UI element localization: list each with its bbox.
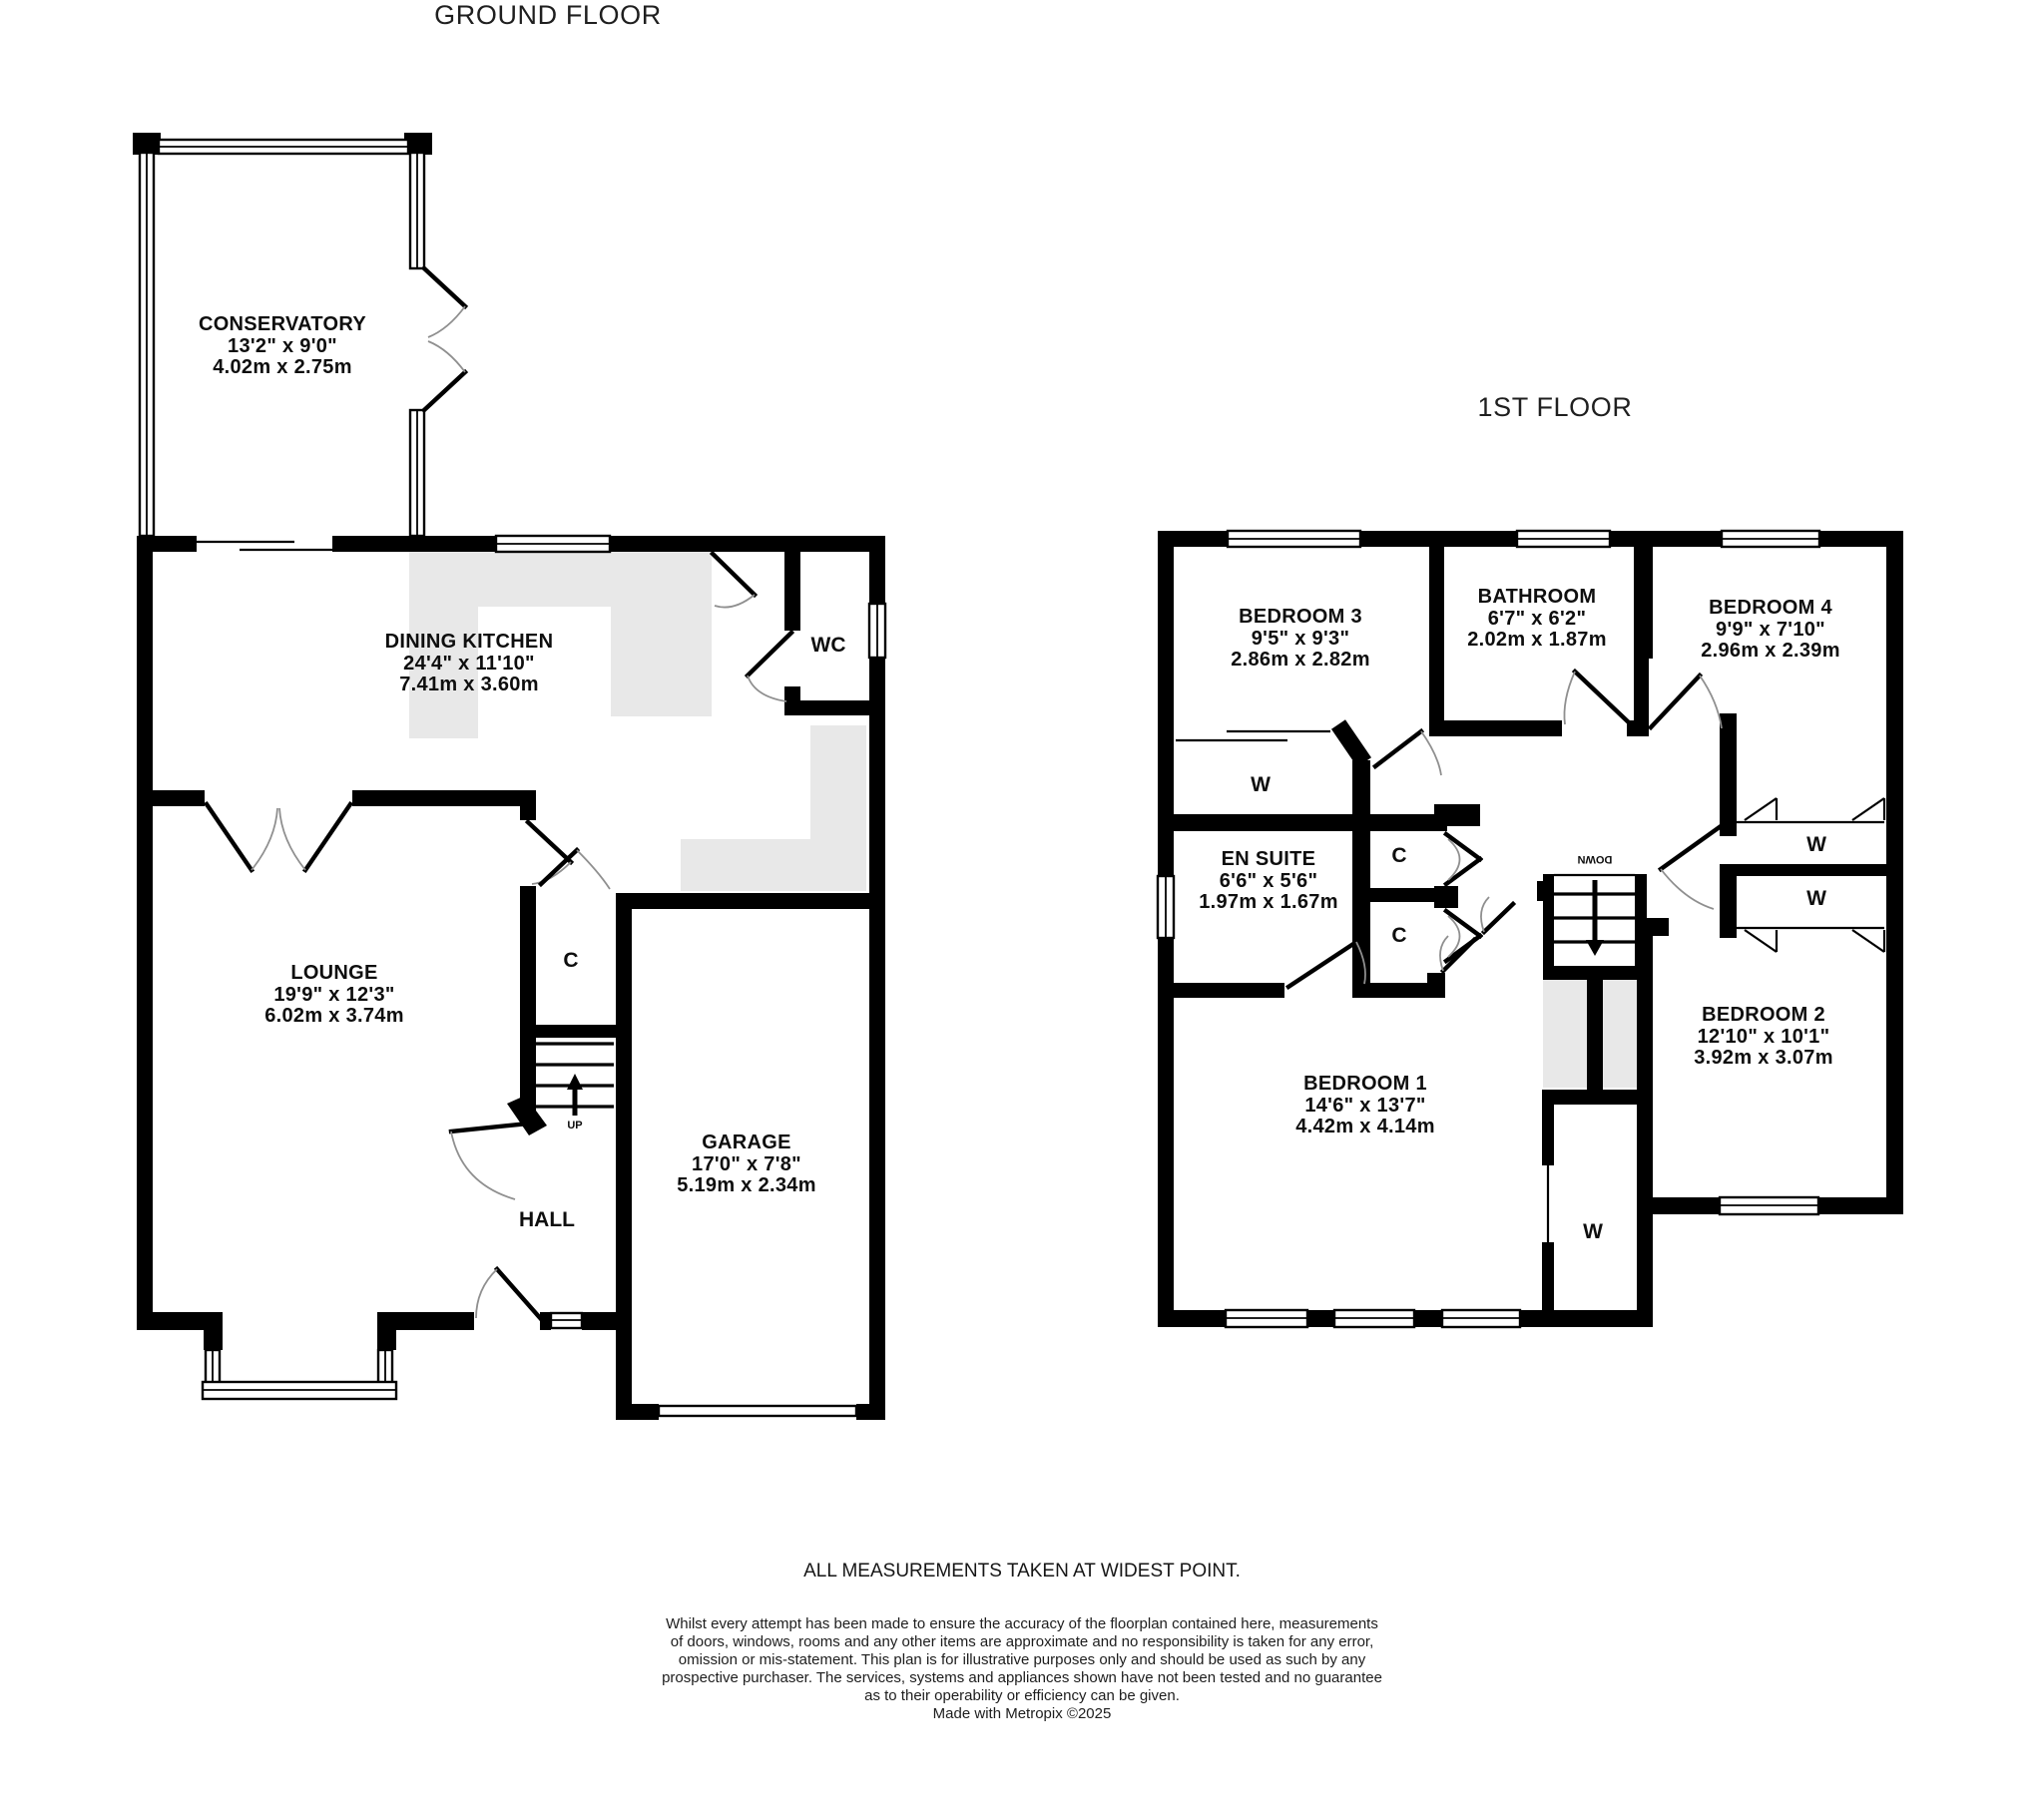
ground-floor-plan: GROUND FLOOR (133, 0, 885, 1420)
bedroom-4-label: BEDROOM 4 9'9" x 7'10" 2.96m x 2.39m (1701, 597, 1840, 662)
wc-label: WC (811, 634, 846, 657)
down-arrow-head (1586, 940, 1604, 956)
svg-text:BEDROOM 4: BEDROOM 4 (1709, 597, 1832, 619)
bedroom-2-label: BEDROOM 2 12'10" x 10'1" 3.92m x 3.07m (1694, 1004, 1833, 1069)
svg-text:19'9" x 12'3": 19'9" x 12'3" (273, 984, 394, 1006)
stairs-down-label: DOWN (1578, 853, 1613, 865)
svg-text:12'10" x 10'1": 12'10" x 10'1" (1698, 1026, 1830, 1048)
en-suite-label: EN SUITE 6'6" x 5'6" 1.97m x 1.67m (1199, 848, 1338, 913)
stairs-up-label: UP (567, 1120, 582, 1131)
garage-door (659, 1406, 856, 1416)
svg-text:6'6" x 5'6": 6'6" x 5'6" (1220, 870, 1318, 892)
credit-line: Made with Metropix ©2025 (933, 1705, 1112, 1722)
bedroom-3-label: BEDROOM 3 9'5" x 9'3" 2.86m x 2.82m (1231, 606, 1370, 671)
svg-text:CONSERVATORY: CONSERVATORY (199, 313, 366, 335)
closet-label: C (563, 949, 578, 972)
svg-text:LOUNGE: LOUNGE (290, 962, 377, 984)
svg-text:24'4" x 11'10": 24'4" x 11'10" (403, 653, 535, 675)
svg-text:2.96m x 2.39m: 2.96m x 2.39m (1701, 640, 1840, 662)
svg-text:EN SUITE: EN SUITE (1222, 848, 1316, 870)
disclaimer-line: as to their operability or efficiency ca… (864, 1687, 1180, 1704)
svg-text:1.97m x 1.67m: 1.97m x 1.67m (1199, 891, 1338, 913)
svg-text:14'6" x 13'7": 14'6" x 13'7" (1304, 1095, 1425, 1117)
svg-text:BEDROOM 1: BEDROOM 1 (1303, 1073, 1427, 1095)
up-arrow-head (567, 1074, 583, 1090)
svg-text:9'9" x 7'10": 9'9" x 7'10" (1716, 619, 1825, 641)
front-door (497, 1269, 542, 1320)
wardrobe-label: W (1583, 1220, 1603, 1243)
svg-text:6'7" x 6'2": 6'7" x 6'2" (1488, 608, 1587, 630)
disclaimer-line: of doors, windows, rooms and any other i… (671, 1633, 1374, 1650)
garage-label: GARAGE 17'0" x 7'8" 5.19m x 2.34m (677, 1131, 816, 1196)
svg-text:17'0" x 7'8": 17'0" x 7'8" (692, 1153, 801, 1175)
svg-text:13'2" x 9'0": 13'2" x 9'0" (228, 335, 337, 357)
stairs-down: DOWN (1554, 853, 1635, 956)
conservatory-label: CONSERVATORY 13'2" x 9'0" 4.02m x 2.75m (199, 313, 366, 378)
svg-text:6.02m x 3.74m: 6.02m x 3.74m (264, 1005, 404, 1027)
first-floor-plan: 1ST FLOOR (1158, 392, 1903, 1327)
lounge-label: LOUNGE 19'9" x 12'3" 6.02m x 3.74m (264, 962, 404, 1027)
ground-floor-title: GROUND FLOOR (434, 0, 662, 30)
svg-text:4.42m x 4.14m: 4.42m x 4.14m (1295, 1116, 1435, 1137)
disclaimer-line: omission or mis-statement. This plan is … (679, 1651, 1366, 1668)
svg-text:2.86m x 2.82m: 2.86m x 2.82m (1231, 649, 1370, 671)
floorplan-canvas: GROUND FLOOR (0, 0, 2044, 1810)
svg-text:7.41m x 3.60m: 7.41m x 3.60m (399, 674, 539, 695)
wardrobe-label: W (1251, 773, 1271, 796)
svg-text:GARAGE: GARAGE (702, 1131, 791, 1153)
svg-text:4.02m x 2.75m: 4.02m x 2.75m (213, 356, 352, 378)
wardrobe-label: W (1806, 833, 1826, 856)
measurements-note: ALL MEASUREMENTS TAKEN AT WIDEST POINT. (803, 1561, 1241, 1582)
svg-text:BATHROOM: BATHROOM (1478, 586, 1597, 608)
first-floor-title: 1ST FLOOR (1478, 392, 1633, 422)
svg-text:DINING KITCHEN: DINING KITCHEN (385, 631, 554, 653)
svg-text:9'5" x 9'3": 9'5" x 9'3" (1252, 628, 1350, 650)
disclaimer-line: prospective purchaser. The services, sys… (662, 1669, 1382, 1686)
svg-text:BEDROOM 3: BEDROOM 3 (1239, 606, 1362, 628)
bathroom-label: BATHROOM 6'7" x 6'2" 2.02m x 1.87m (1467, 586, 1607, 651)
closet-label: C (1391, 844, 1406, 867)
french-doors (424, 268, 465, 410)
svg-text:3.92m x 3.07m: 3.92m x 3.07m (1694, 1047, 1833, 1069)
svg-text:2.02m x 1.87m: 2.02m x 1.87m (1467, 629, 1607, 651)
floorplan-svg: GROUND FLOOR (0, 0, 2044, 1810)
first-labels: BEDROOM 3 9'5" x 9'3" 2.86m x 2.82m BATH… (1199, 586, 1840, 1243)
wardrobe-label: W (1806, 887, 1826, 910)
disclaimer-line: Whilst every attempt has been made to en… (666, 1615, 1378, 1632)
closet-label: C (1391, 924, 1406, 947)
hall-label: HALL (519, 1208, 575, 1231)
svg-text:5.19m x 2.34m: 5.19m x 2.34m (677, 1174, 816, 1196)
bedroom-1-label: BEDROOM 1 14'6" x 13'7" 4.42m x 4.14m (1295, 1073, 1435, 1137)
footer: ALL MEASUREMENTS TAKEN AT WIDEST POINT. … (662, 1561, 1382, 1722)
dining-kitchen-label: DINING KITCHEN 24'4" x 11'10" 7.41m x 3.… (385, 631, 554, 695)
svg-text:BEDROOM 2: BEDROOM 2 (1702, 1004, 1825, 1026)
stairs-up: UP (536, 1044, 614, 1131)
